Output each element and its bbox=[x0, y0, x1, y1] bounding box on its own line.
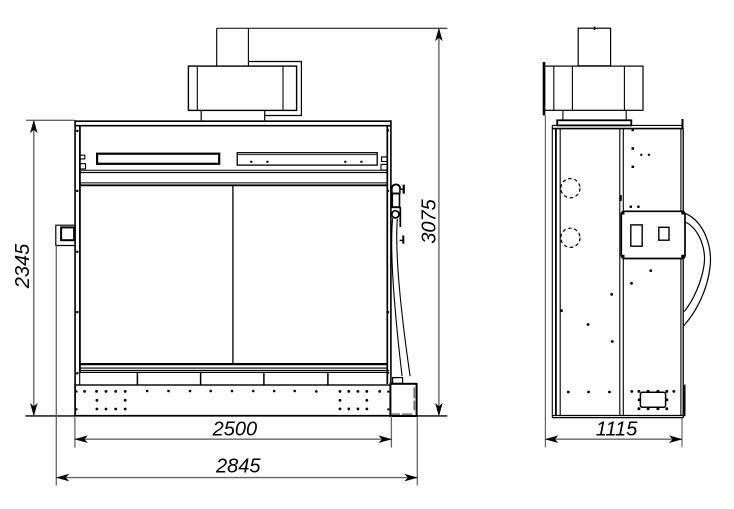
svg-text:2500: 2500 bbox=[212, 419, 258, 441]
svg-text:1115: 1115 bbox=[596, 418, 638, 440]
svg-text:2845: 2845 bbox=[215, 456, 261, 478]
svg-text:2345: 2345 bbox=[12, 243, 34, 289]
svg-text:3075: 3075 bbox=[418, 198, 440, 243]
